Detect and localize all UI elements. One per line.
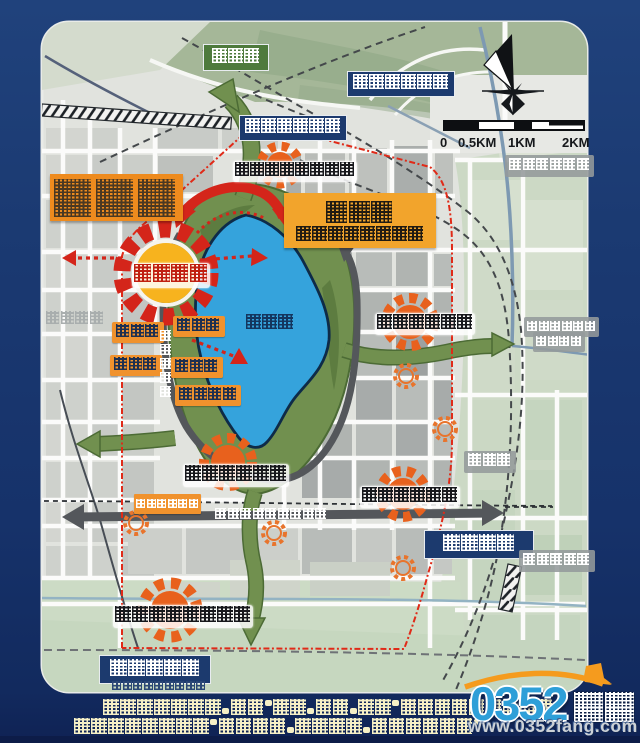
svg-text:0: 0 <box>440 135 447 150</box>
svg-text:0.5KM: 0.5KM <box>458 135 496 150</box>
svg-text:2KM: 2KM <box>562 135 589 150</box>
svg-text:1KM: 1KM <box>508 135 535 150</box>
